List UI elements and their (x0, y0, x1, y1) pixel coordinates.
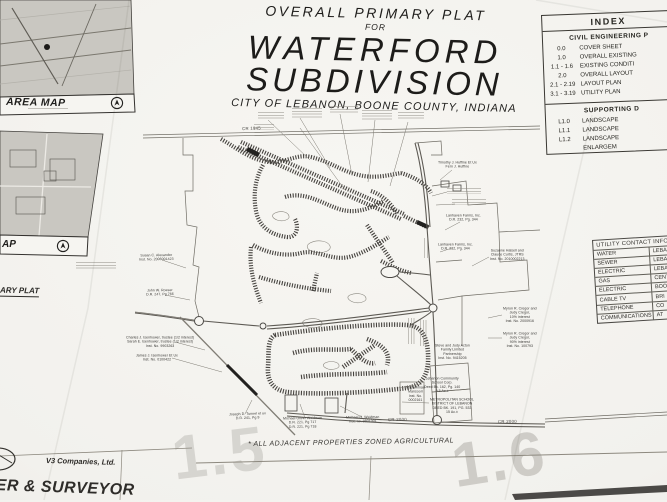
sheet-number (547, 144, 583, 154)
utility-provider: CENTE (651, 273, 667, 281)
owner-annotation: Joseph D. Tunnel et ux D.R. 241, Pg 9 (229, 412, 266, 422)
illegible-label (330, 106, 358, 114)
owner-annotation: Lebanon Community School Corp. Deed Bk. … (424, 377, 460, 394)
illegible-label (398, 112, 424, 120)
owner-annotation: Mohammad Mansoori Inst. No. 0002161 (406, 386, 425, 403)
illegible-label (424, 238, 429, 258)
table-edge (512, 485, 667, 500)
illegible-label (258, 112, 284, 120)
illegible-label (420, 320, 427, 346)
illegible-label (362, 110, 392, 120)
illegible-label (447, 188, 481, 194)
title-line-subdivision: SUBDIVISION (208, 63, 541, 101)
utility-provider: LEBANO (650, 255, 667, 263)
company-name: V3 Companies, Ltd. (46, 456, 116, 467)
owner-annotation: John W. Roeser D.R. 247, Pg 766 (146, 289, 174, 298)
utility-provider: CO (653, 301, 667, 309)
utility-provider: LEBAN (651, 264, 667, 272)
utility-contact-table: UTILITY CONTACT INFOR WATERLEBANO SEWERL… (592, 234, 667, 324)
illegible-label (254, 124, 274, 130)
illegible-label (452, 199, 486, 205)
owner-annotation: Michael O. Weidman Inst. no. 9801001 (346, 415, 379, 424)
owner-annotation: Susan C. Alexander Inst. No. 2006001423 (139, 253, 174, 262)
road-label: CR 2000 (388, 418, 407, 423)
owner-annotation: Suzanne Halsell and Claude Curtis, JTRS … (490, 249, 524, 262)
owner-annotation: Myron R. Cregor and Judy Cregor, 90% int… (503, 332, 537, 349)
owner-annotation: Lanhaven Farms, Inc. D.R. 232, Pg. 344 (446, 214, 481, 222)
illegible-label (292, 108, 322, 118)
owner-annotation: Timothy J. Huffine Et Ux Fern J. Huffine (438, 161, 477, 169)
owner-annotation: Lanhaven Farms, Inc. D.R. 232, Pg. 344 (438, 243, 473, 251)
utility-provider: AT (654, 310, 667, 318)
v3-logo (0, 448, 15, 470)
utility-provider: LEBANO (650, 246, 667, 254)
owner-annotation: Charles J. Isenhower, trustee (1/2 inter… (126, 336, 194, 349)
photo-of-plat-cover-sheet: { "title_block": { "line1": "OVERALL PRI… (0, 0, 667, 500)
illegible-label (408, 318, 415, 344)
utility-provider: BOON (652, 282, 667, 290)
owner-annotation: Michael Oliver Weidman D.R. 221, Pg 717 … (283, 416, 322, 429)
sheet-title: OVERALL PRIMARY PLAT FOR WATERFORD SUBDI… (208, 2, 542, 116)
index-title: INDEX (542, 11, 667, 32)
road-label: CR 2000 (498, 420, 517, 425)
owner-annotation: Steve and Judy Acton Family Limited Part… (435, 344, 470, 361)
utility-provider: BRI (652, 292, 667, 300)
owner-annotation: Myron R. Cregor and Judy Cregor, 10% int… (503, 307, 537, 324)
owner-annotation: James J. Isenhower Et Ux Inst. No. 01004… (136, 354, 178, 362)
index-table: INDEX CIVIL ENGINEERING P 0.0COVER SHEET… (541, 9, 667, 155)
owner-annotation: METROPOLITAN SCHOOL DISTRICT OF LEBANON … (430, 398, 474, 415)
sheet-number: 3.1 - 3.19 (545, 90, 581, 100)
